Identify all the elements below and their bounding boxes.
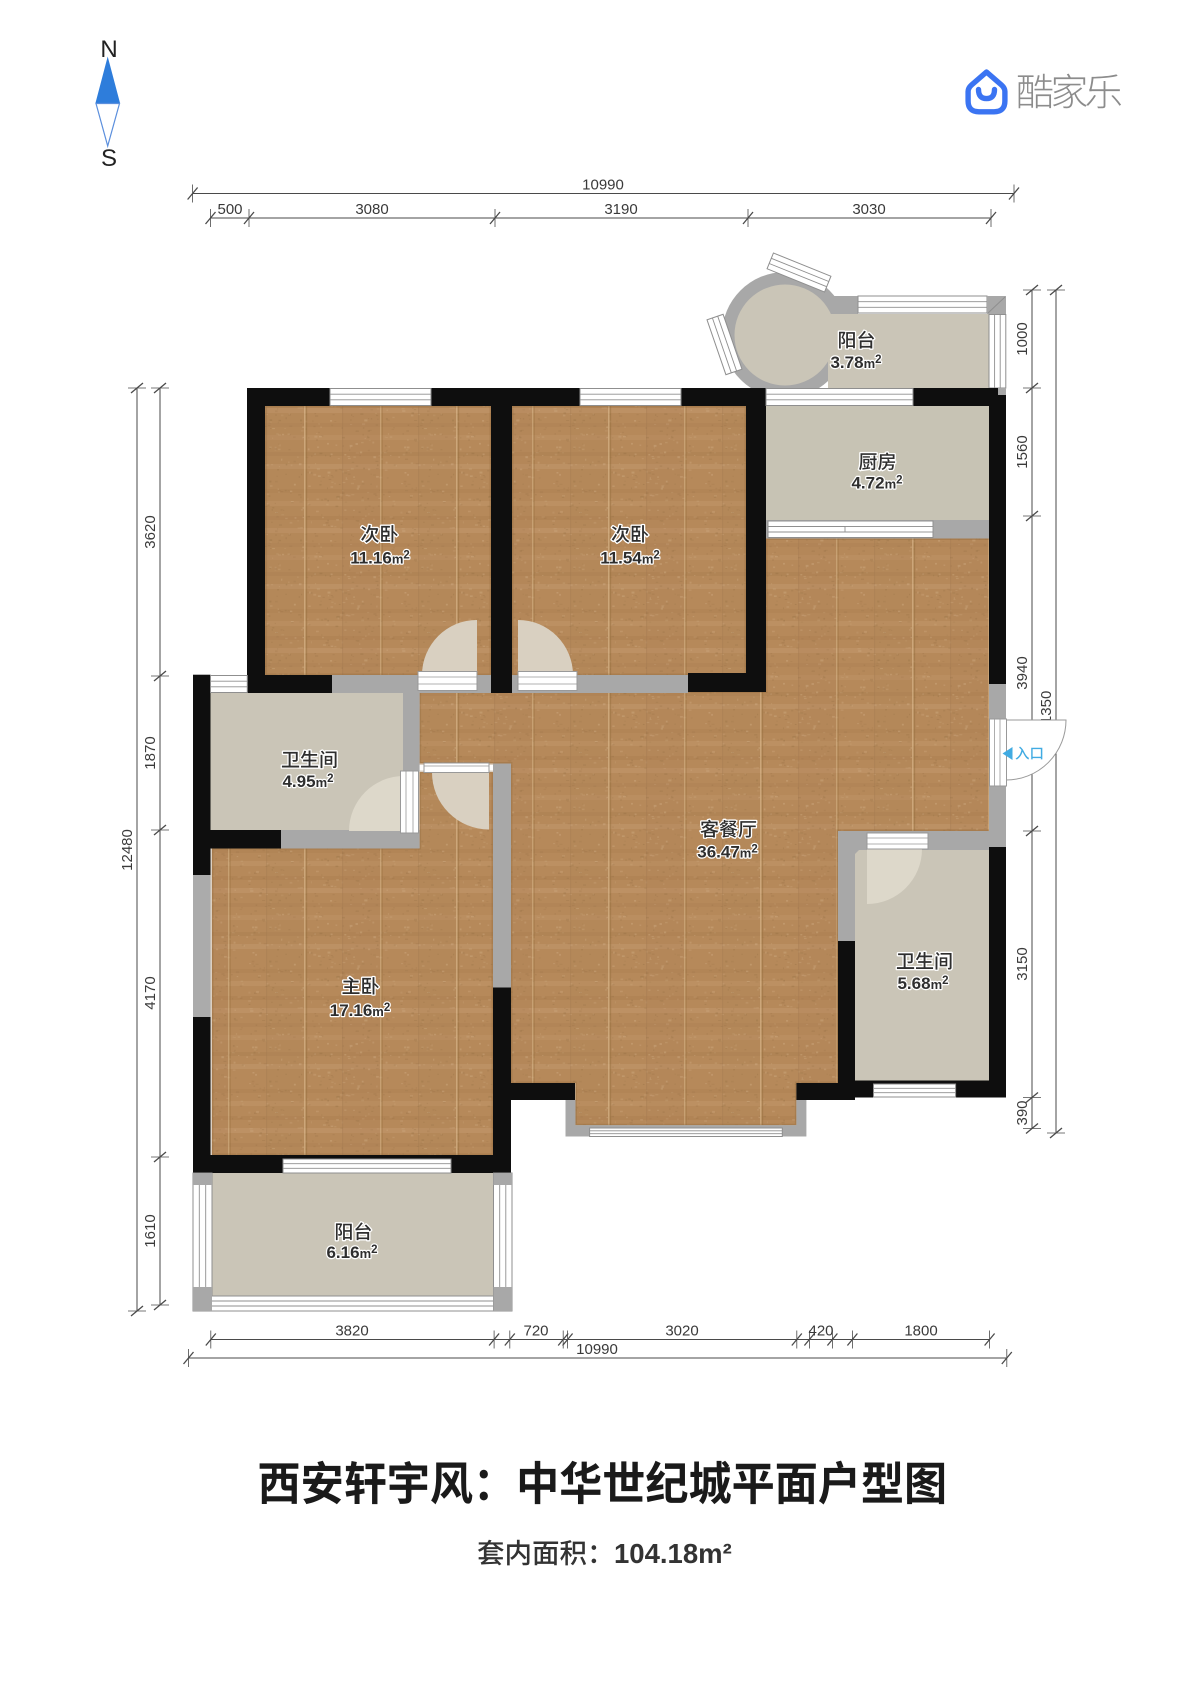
svg-text:10990: 10990 <box>582 177 624 194</box>
svg-text:390: 390 <box>1014 1100 1031 1125</box>
svg-text:420: 420 <box>808 1323 833 1340</box>
svg-text:3190: 3190 <box>604 201 637 218</box>
svg-text:11.16m2: 11.16m2 <box>350 549 410 568</box>
svg-text:3020: 3020 <box>665 1323 698 1340</box>
svg-text:1800: 1800 <box>904 1323 937 1340</box>
svg-text:3150: 3150 <box>1014 947 1031 980</box>
svg-text:4.95m2: 4.95m2 <box>282 772 333 791</box>
svg-text:3940: 3940 <box>1014 656 1031 689</box>
svg-text:3820: 3820 <box>335 1323 368 1340</box>
svg-text:11.54m2: 11.54m2 <box>600 549 660 568</box>
svg-text:104.18m²: 104.18m² <box>614 1538 732 1569</box>
svg-text:720: 720 <box>523 1323 548 1340</box>
svg-text:1610: 1610 <box>142 1214 159 1247</box>
svg-text:1000: 1000 <box>1014 322 1031 355</box>
svg-text:S: S <box>101 145 117 172</box>
svg-text:4.72m2: 4.72m2 <box>851 474 902 493</box>
svg-text:4170: 4170 <box>142 976 159 1009</box>
svg-text:12480: 12480 <box>119 829 136 871</box>
svg-text:3030: 3030 <box>852 201 885 218</box>
svg-text:10990: 10990 <box>576 1341 618 1358</box>
svg-text:500: 500 <box>217 201 242 218</box>
svg-text:6.16m2: 6.16m2 <box>326 1243 377 1262</box>
svg-text:17.16m2: 17.16m2 <box>330 1001 391 1020</box>
svg-text:5.68m2: 5.68m2 <box>897 974 948 993</box>
svg-text:3080: 3080 <box>355 201 388 218</box>
svg-text:N: N <box>100 36 117 63</box>
svg-text:1870: 1870 <box>142 736 159 769</box>
svg-text:36.47m2: 36.47m2 <box>697 843 758 862</box>
svg-text:3620: 3620 <box>142 515 159 548</box>
svg-text:3.78m2: 3.78m2 <box>830 353 881 372</box>
svg-text:1560: 1560 <box>1014 435 1031 468</box>
